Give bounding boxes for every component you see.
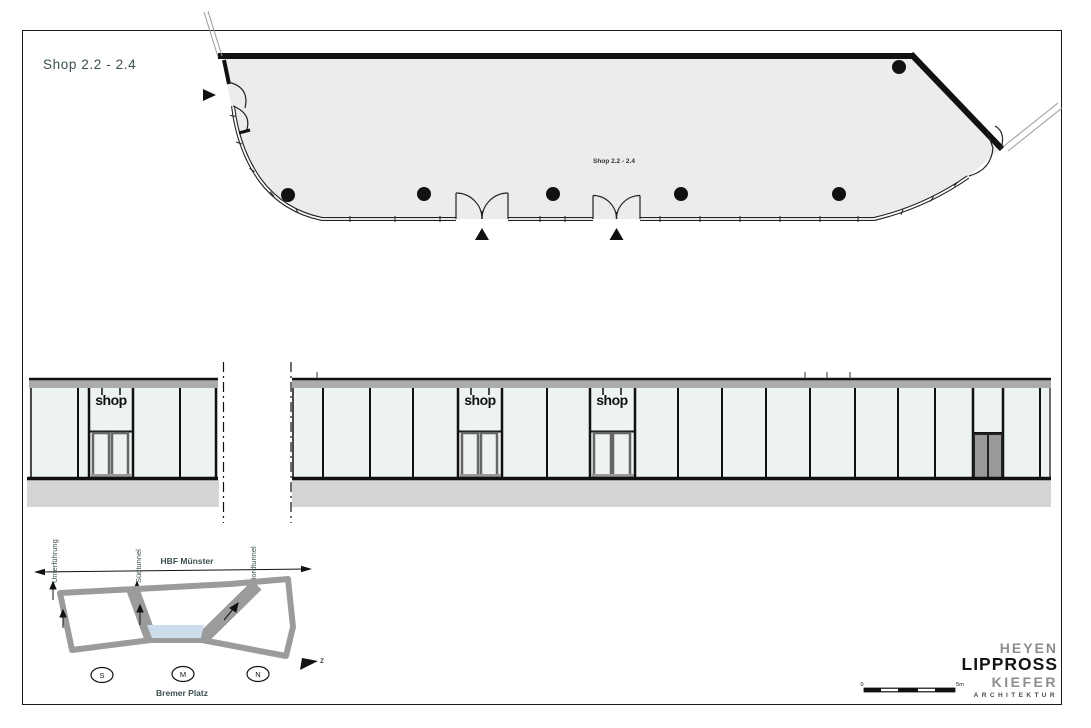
badge-m: M	[172, 667, 194, 682]
elevation-shop-door-3	[590, 432, 635, 480]
logo-line-kiefer: KIEFER	[962, 675, 1059, 689]
plan-room-label: Shop 2.2 - 2.4	[593, 158, 635, 165]
architectural-drawing: Shop 2.2 - 2.4	[0, 0, 1091, 728]
badge-s: S	[91, 668, 113, 683]
shop-sign-label: shop	[95, 392, 126, 408]
shop-sign-label: shop	[596, 392, 627, 408]
shop-sign-label: shop	[464, 392, 495, 408]
scale-start-label: 0	[860, 682, 863, 688]
column-dot	[892, 60, 906, 74]
badge-n: N	[247, 667, 269, 682]
tunnel-label-suedtunnel: Südtunnel	[134, 549, 143, 583]
elevation-ground-right	[292, 480, 1051, 507]
elevation-glazing-right	[292, 388, 1051, 477]
plaza-label: Bremer Platz	[156, 688, 208, 698]
logo-line-architektur: ARCHITEKTUR	[962, 693, 1059, 700]
logo-line-heyen: HEYEN	[962, 641, 1059, 655]
column-dot	[674, 187, 688, 201]
column-dot	[546, 187, 560, 201]
elevation-break-lines	[224, 362, 292, 523]
station-axis	[38, 569, 308, 572]
axis-arrowhead-right	[301, 566, 312, 573]
tunnel-label-unterfuehrung: Unterführung	[50, 539, 59, 583]
elevation-service-door	[973, 433, 1003, 478]
badge-s-label: S	[99, 671, 104, 680]
scale-bar: 0 5m	[860, 682, 964, 692]
logo-line-lippross: LIPPROSS	[962, 656, 1059, 674]
tunnel-label-nordtunnel: Nordtunnel	[249, 546, 258, 583]
architect-logo: HEYEN LIPPROSS KIEFER ARCHITEKTUR	[962, 641, 1059, 699]
elevation-fascia	[29, 379, 1051, 388]
north-arrow: z	[300, 656, 324, 670]
badge-m-label: M	[180, 670, 186, 679]
plan-door-2-arrow	[610, 228, 624, 240]
floor-plan: Shop 2.2 - 2.4	[203, 11, 1062, 240]
column-dot	[281, 188, 295, 202]
elevation-shop-door-2	[458, 432, 502, 480]
station-label: HBF Münster	[161, 556, 215, 566]
badge-n-label: N	[255, 670, 260, 679]
elevation: shop shop shop	[27, 362, 1051, 523]
footprint-highlight	[147, 625, 204, 638]
north-arrow-label: z	[320, 656, 324, 665]
plan-door-1-arrow	[475, 228, 489, 240]
column-dot	[417, 187, 431, 201]
elevation-ground-left	[27, 480, 219, 507]
elevation-shop-door-1	[89, 432, 133, 480]
column-dot	[832, 187, 846, 201]
plan-door-left-arrow	[203, 89, 216, 101]
axis-arrowhead-left	[34, 569, 45, 576]
plan-room-fill	[223, 57, 1001, 219]
site-diagram: HBF Münster Unterführung Südtunnel Nordt…	[34, 539, 324, 698]
drawing-sheet: Shop 2.2 - 2.4	[0, 0, 1091, 728]
